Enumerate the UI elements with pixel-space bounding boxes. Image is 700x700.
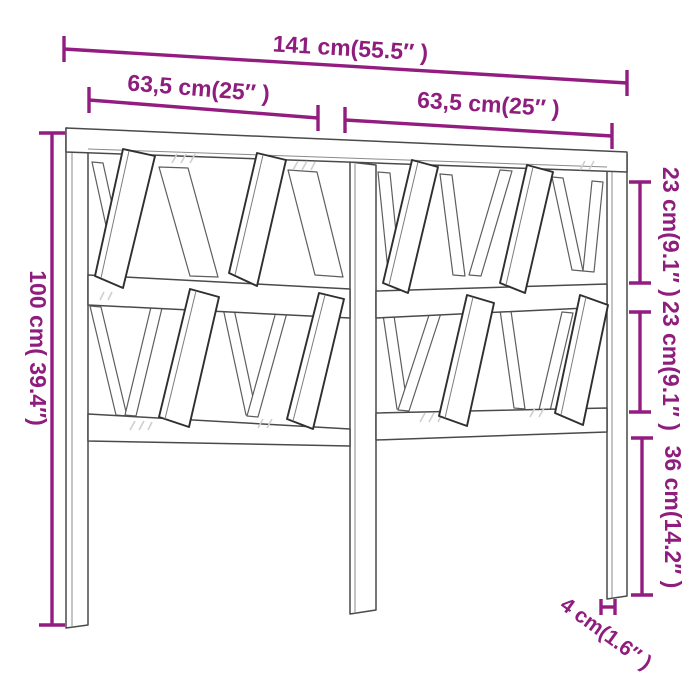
slat xyxy=(159,167,218,277)
slat xyxy=(90,306,127,416)
grain-mark xyxy=(293,161,315,170)
headboard-drawing xyxy=(66,128,627,628)
slat xyxy=(125,307,162,416)
dim-line xyxy=(345,120,612,136)
slat xyxy=(398,309,442,411)
dim-right-section-width: 63,5 cm(25″ ) xyxy=(345,87,612,149)
slat xyxy=(552,177,583,271)
slat xyxy=(500,310,525,409)
dimension-diagram-page: 141 cm(55.5″ ) 63,5 cm(25″ ) 63,5 cm(25″… xyxy=(0,0,700,700)
slat xyxy=(247,308,288,417)
dim-leg-height: 36 cm(14.2″ ) xyxy=(631,438,686,595)
dim-label-upper-panel: 23 cm(9.1″ ) xyxy=(658,167,684,297)
dim-left-section-width: 63,5 cm(25″ ) xyxy=(89,69,318,131)
dim-total-height: 100 cm( 39.4″) xyxy=(25,133,65,625)
dim-label-left-section: 63,5 cm(25″ ) xyxy=(126,69,270,106)
dim-label-total-height: 100 cm( 39.4″) xyxy=(25,270,51,426)
dim-label-right-section: 63,5 cm(25″ ) xyxy=(416,87,560,122)
dim-label-middle-panel: 23 cm(9.1″ ) xyxy=(658,301,684,431)
slat xyxy=(288,170,343,277)
dim-label-leg-height: 36 cm(14.2″ ) xyxy=(660,446,686,589)
slat xyxy=(440,174,465,276)
dim-post-thickness: 4 cm(1.6″ ) xyxy=(556,593,656,674)
right-post xyxy=(607,152,627,599)
dim-label-total-width: 141 cm(55.5″ ) xyxy=(272,30,429,65)
dim-label-post-thickness: 4 cm(1.6″ ) xyxy=(556,593,656,674)
middle-post xyxy=(350,162,376,614)
left-post xyxy=(66,128,88,628)
dim-middle-panel-height: 23 cm(9.1″ ) xyxy=(629,301,684,431)
dim-upper-panel-height: 23 cm(9.1″ ) xyxy=(629,167,684,297)
dim-line xyxy=(89,100,318,118)
slat xyxy=(583,181,603,272)
headboard-dimension-diagram: 141 cm(55.5″ ) 63,5 cm(25″ ) 63,5 cm(25″… xyxy=(0,0,700,700)
